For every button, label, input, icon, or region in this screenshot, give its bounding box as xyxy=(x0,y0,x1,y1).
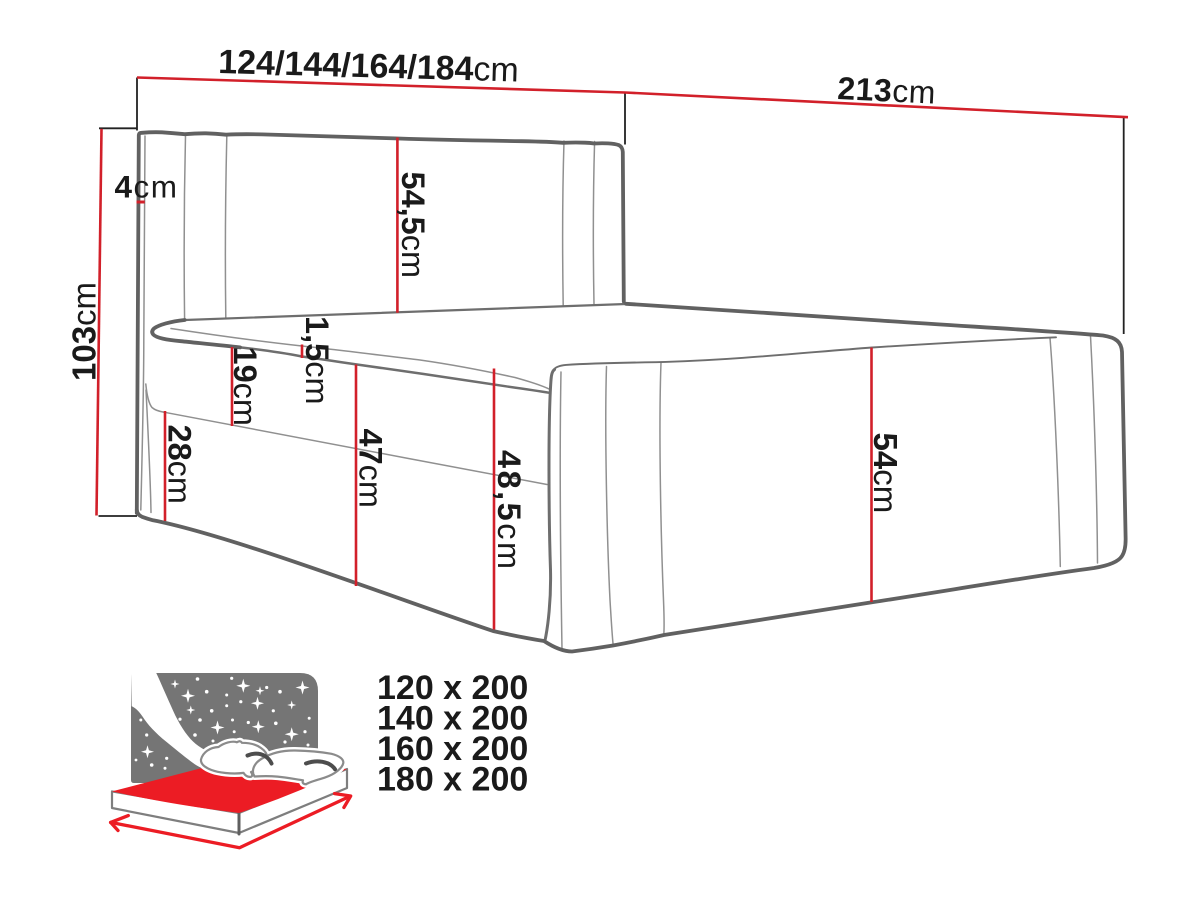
svg-text:4cm: 4cm xyxy=(115,169,179,205)
svg-text:1,5cm: 1,5cm xyxy=(299,316,335,405)
svg-text:48,5cm: 48,5cm xyxy=(491,450,527,572)
svg-text:180 x 200: 180 x 200 xyxy=(377,761,528,799)
svg-text:54,5cm: 54,5cm xyxy=(395,172,431,279)
svg-text:103cm: 103cm xyxy=(66,282,103,381)
svg-text:213cm: 213cm xyxy=(837,70,937,111)
svg-text:47cm: 47cm xyxy=(353,429,389,508)
svg-text:19cm: 19cm xyxy=(227,347,263,426)
svg-text:54cm: 54cm xyxy=(867,433,904,514)
svg-text:28cm: 28cm xyxy=(162,425,198,504)
